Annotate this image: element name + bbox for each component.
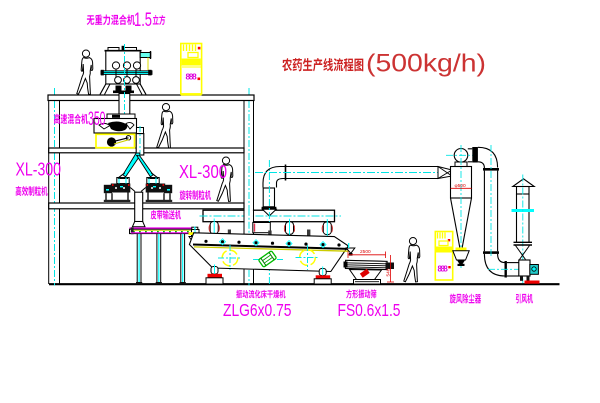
svg-text:548: 548 <box>385 268 391 276</box>
svg-text:1.5: 1.5 <box>134 9 152 31</box>
svg-text:350: 350 <box>88 109 106 130</box>
svg-text:FS0.6x1.5: FS0.6x1.5 <box>338 300 401 320</box>
svg-text:(500kg/h): (500kg/h) <box>366 50 486 78</box>
svg-text:XL-300: XL-300 <box>179 161 227 182</box>
svg-text:ZLG6x0.75: ZLG6x0.75 <box>223 300 292 320</box>
svg-text:XL-300: XL-300 <box>16 159 62 180</box>
svg-text:2500: 2500 <box>360 249 371 255</box>
